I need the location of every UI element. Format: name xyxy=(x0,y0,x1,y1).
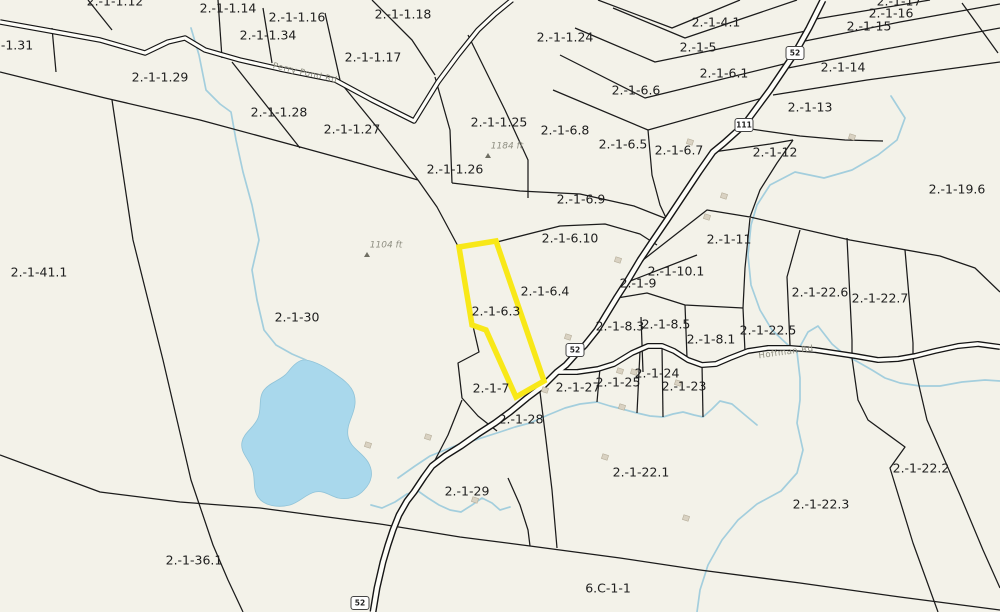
parcel-label: 2.-1-8.3 xyxy=(596,319,645,334)
parcel-label: 2.-1-6.7 xyxy=(655,143,704,158)
parcel-label: 2.-1-6.1 xyxy=(700,66,749,81)
route-shield-number: 52 xyxy=(790,49,800,58)
parcel-label: 2.-1-1.34 xyxy=(240,28,297,43)
parcel-label: 2.-1-13 xyxy=(788,100,833,115)
parcel-label: -1.31 xyxy=(1,38,33,53)
route-shield-number: 52 xyxy=(355,599,365,608)
parcel-label: 2.-1-14 xyxy=(821,60,866,75)
parcel-label: 2.-1-1.24 xyxy=(537,30,594,45)
parcel-label: 2.-1-8.5 xyxy=(642,317,691,332)
parcel-label: 2.-1-6.6 xyxy=(612,83,661,98)
parcel-label: 2.-1-41.1 xyxy=(11,265,68,280)
parcel-label: 2.-1-12 xyxy=(753,145,798,160)
route-shield-number: 52 xyxy=(570,346,580,355)
parcel-label: 2.-1-11 xyxy=(707,232,752,247)
parcel-label: 2.-1-1.16 xyxy=(269,10,326,25)
parcel-label: 2.-1-36.1 xyxy=(166,553,223,568)
parcel-label: 2.-1-1.26 xyxy=(427,162,484,177)
parcel-label: 2.-1-15 xyxy=(847,19,892,34)
parcel-label: 2.-1-1.18 xyxy=(375,7,432,22)
parcel-label: 2.-1-9 xyxy=(620,276,657,291)
parcel-label: 2.-1-22.1 xyxy=(613,465,670,480)
parcel-label: 2.-1-6.10 xyxy=(542,231,599,246)
parcel-label: 2.-1-1.12 xyxy=(87,0,144,9)
parcel-label: 2.-1-23 xyxy=(662,379,707,394)
parcel-label: 2.-1-1.27 xyxy=(324,122,381,137)
parcel-label: 2.-1-6.8 xyxy=(541,123,590,138)
parcel-label: 6.C-1-1 xyxy=(585,581,631,596)
parcel-label: 2.-1-30 xyxy=(275,310,320,325)
elevation-label: 1104 ft xyxy=(370,241,403,251)
parcel-label: 2.-1-4.1 xyxy=(692,15,741,30)
parcel-label: 2.-1-6.4 xyxy=(521,284,570,299)
parcel-label: 2.-1-6.3 xyxy=(472,304,521,319)
parcel-label: 2.-1-5 xyxy=(680,40,717,55)
route-shield-number: 111 xyxy=(736,121,752,130)
parcel-label: 2.-1-22.5 xyxy=(740,323,797,338)
parcel-label: 2.-1-1.17 xyxy=(345,50,402,65)
parcel-label: 2.-1-1.28 xyxy=(251,105,308,120)
parcel-label: 2.-1-22.3 xyxy=(793,497,850,512)
parcel-label: 2.-1-22.2 xyxy=(893,461,950,476)
parcel-label: 2.-1-22.6 xyxy=(792,285,849,300)
parcel-label: 2.-1-29 xyxy=(445,484,490,499)
elevation-label: 1184 ft xyxy=(491,142,524,152)
parcel-label: 2.-1-28 xyxy=(499,412,544,427)
parcel-label: 2.-1-7 xyxy=(473,381,510,396)
parcel-label: 2.-1-6.5 xyxy=(599,137,648,152)
parcel-label: 2.-1-1.25 xyxy=(471,115,528,130)
parcel-label: 2.-1-1.14 xyxy=(200,1,257,16)
parcel-label: 2.-1-8.1 xyxy=(687,332,736,347)
parcel-label: 2.-1-27 xyxy=(556,380,601,395)
parcel-label: 2.-1-19.6 xyxy=(929,182,986,197)
parcel-label: 2.-1-25 xyxy=(596,375,641,390)
parcel-map-svg: 1104 ft1184 ftPerry Pond RdHoffman Rd521… xyxy=(0,0,1000,612)
parcel-label: 2.-1-22.7 xyxy=(852,291,909,306)
parcel-label: 2.-1-1.29 xyxy=(132,70,189,85)
parcel-label: 2.-1-6.9 xyxy=(557,192,606,207)
parcel-map-canvas[interactable]: 1104 ft1184 ftPerry Pond RdHoffman Rd521… xyxy=(0,0,1000,612)
